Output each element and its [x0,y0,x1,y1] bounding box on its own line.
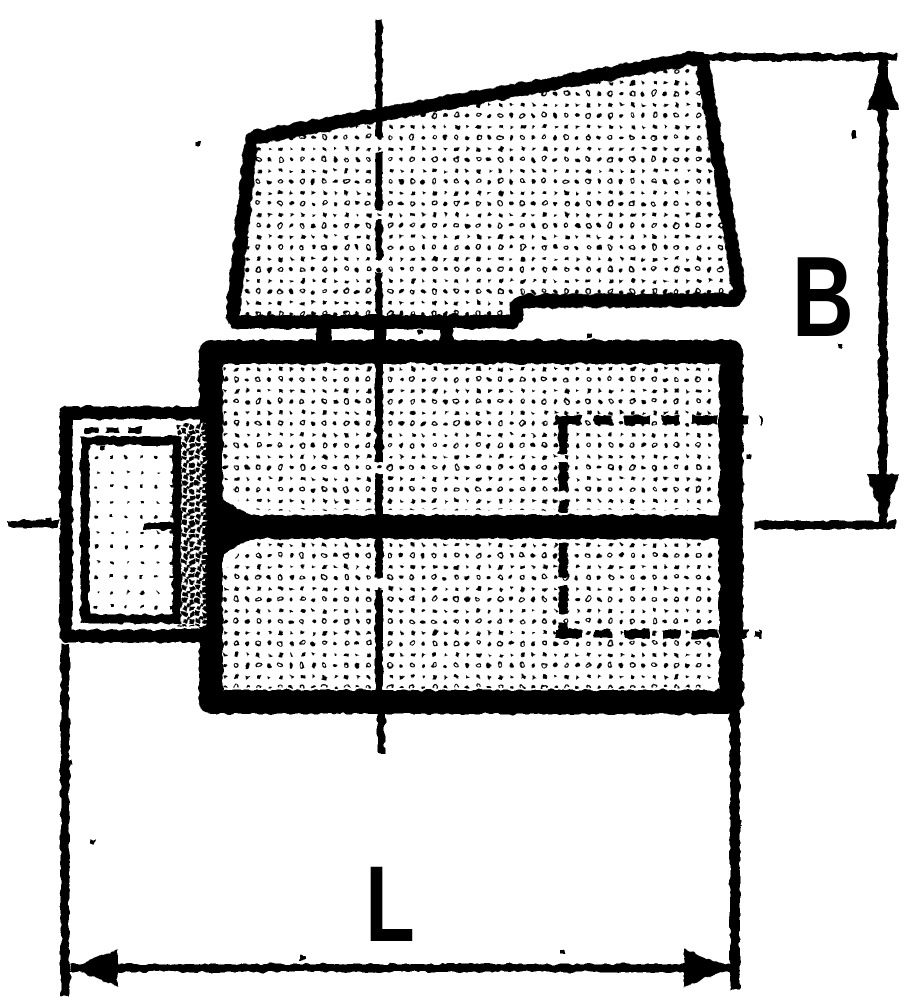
svg-text:B: B [792,234,854,361]
svg-text:L: L [365,845,414,965]
